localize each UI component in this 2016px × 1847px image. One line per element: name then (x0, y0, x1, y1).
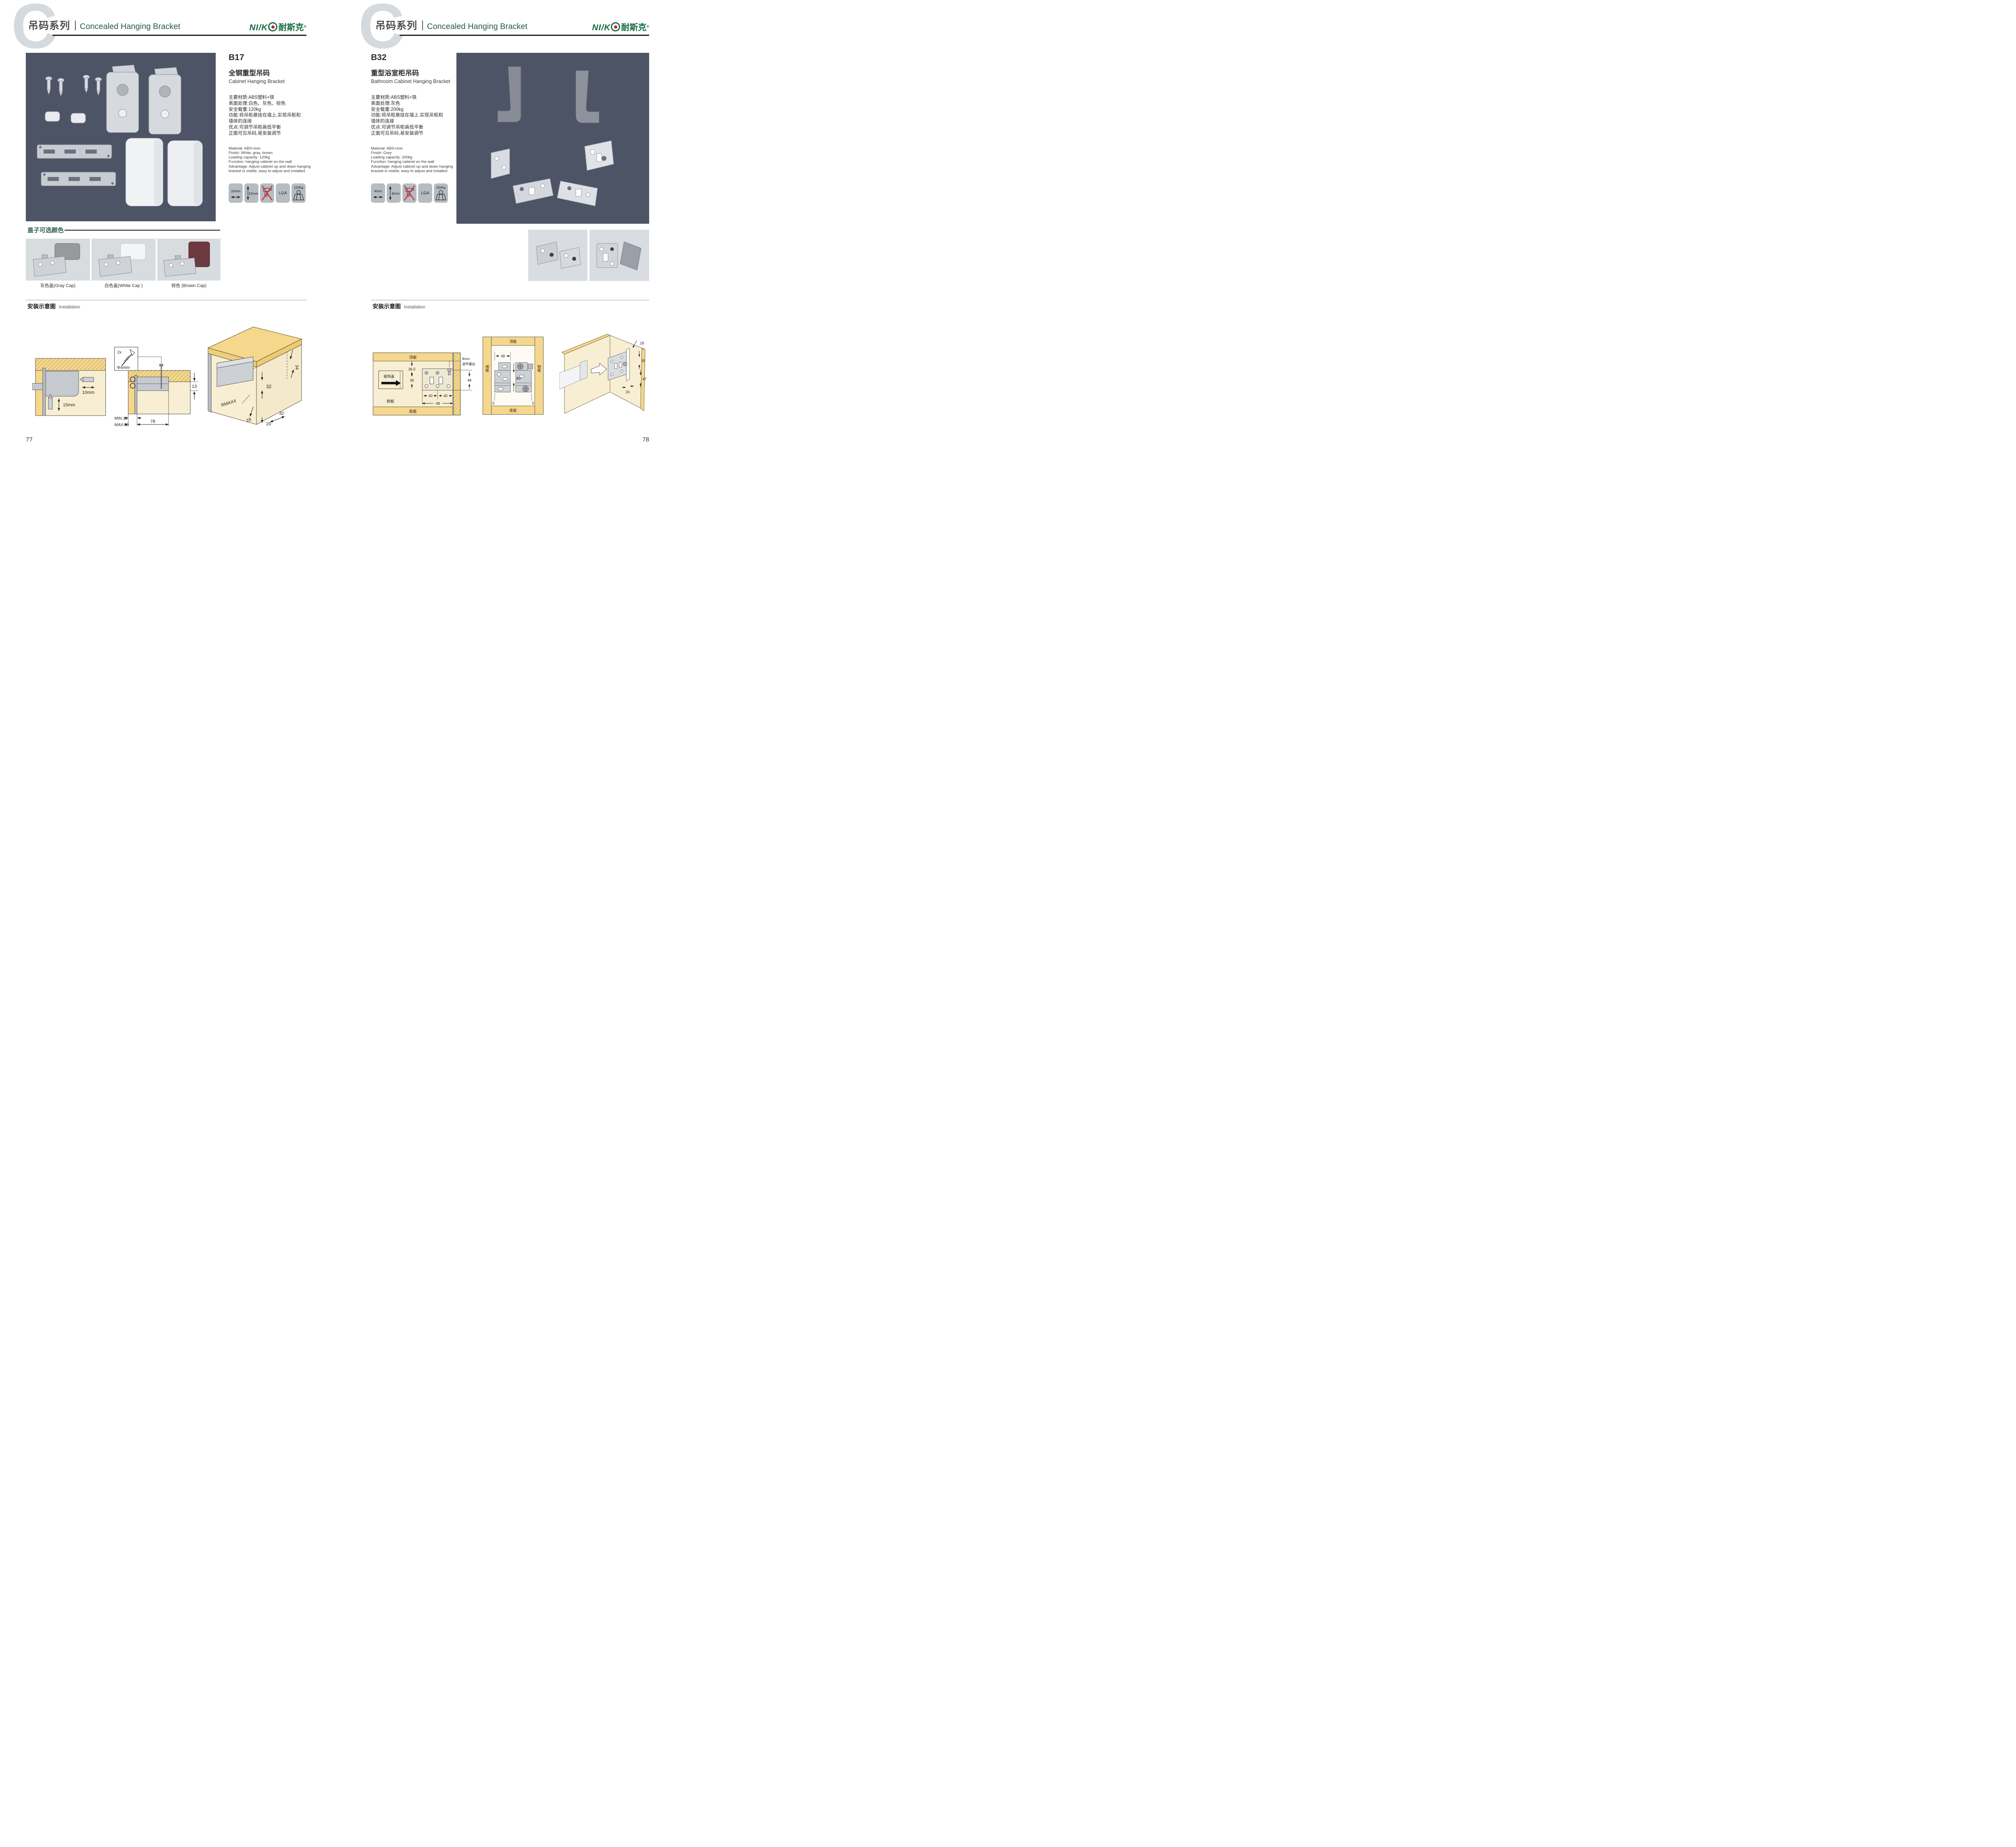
product-photo-b17 (26, 53, 216, 221)
dim-20: 20 (266, 422, 271, 426)
label-cover: 装饰盖 (383, 374, 394, 379)
bracket-plate (33, 256, 66, 277)
installation-title-en: Installation (59, 305, 80, 310)
label-side-panel: 侧板 (387, 399, 394, 404)
spec-line: Loading capacity: 200kg (371, 155, 456, 160)
registered-mark: ® (646, 25, 649, 29)
plate-cover-illustration (589, 230, 649, 281)
wall-plug-cap (71, 113, 85, 123)
specs-en: Material: ABS+iron Finish: White, gray, … (229, 146, 314, 174)
screw-note-1: 8mm (462, 357, 470, 361)
spec-line: 表面处理:白色、灰色、棕色 (229, 101, 314, 107)
header-rule (52, 35, 306, 36)
wall-hook (32, 383, 43, 390)
dim-5-right: 5 (532, 401, 534, 406)
white-cap-illustration (92, 239, 156, 281)
spec-line: 优点:可调节吊柜高低平衡 (229, 125, 314, 131)
specs-en: Material: ABS+iron Finish: Grey Loading … (371, 146, 456, 174)
dim-13: 13 (192, 384, 197, 389)
gray-cover (620, 242, 641, 270)
cap-option-white (92, 239, 156, 281)
installation-diagram-section: 10mm 15mm (32, 354, 109, 419)
spec-line: Advantage: Adjust cabinet up and down ha… (371, 164, 456, 169)
vertical-arrow-icon (244, 183, 258, 203)
series-title-en: Concealed Hanging Bracket (427, 22, 527, 31)
hanging-bracket-metal (106, 65, 139, 133)
driver-bit-icon (80, 377, 94, 382)
spec-badges-b17: 10mm 15mm LGA 120Kg (229, 183, 306, 203)
spec-line: 优点:可调节吊柜高低平衡 (371, 125, 456, 131)
label-top-panel: 顶板 (409, 355, 417, 360)
product-name-en: Cabinet Hanging Bracket (229, 79, 314, 84)
dim-24: 24 (626, 390, 630, 394)
spec-line: Loading capacity: 120kg (229, 155, 314, 160)
nisko-target-icon (268, 22, 277, 31)
installation-title-zh: 安装示意图 (373, 303, 401, 310)
b17-photo-illustration (26, 53, 216, 221)
spec-badges-b32: 4mm 8mm LGA 200Kg (371, 183, 448, 203)
dim-40b: 40 (444, 394, 448, 398)
height-dimension-badge: 8mm (387, 183, 401, 203)
corner-bracket-chrome (585, 141, 614, 171)
dim-18: 18 (640, 341, 644, 345)
no-drill-icon (260, 183, 274, 203)
dim-80: 80 (516, 376, 521, 381)
detail-photo-plates (528, 230, 587, 281)
no-drill-badge (402, 183, 417, 203)
spec-line: 墙体的连接 (371, 119, 456, 125)
screw-icon (58, 78, 64, 96)
spec-line: 功能:将吊柜悬挂在墙上,实现吊柜和 (229, 112, 314, 119)
series-title-zh: 吊码系列 (375, 20, 417, 31)
section-divider (371, 300, 649, 300)
installation-title-zh: 安装示意图 (27, 303, 56, 310)
mounting-rail (41, 172, 116, 186)
screw-icon (95, 77, 102, 96)
product-code: B17 (229, 53, 314, 62)
header-rule (400, 35, 649, 36)
header-divider-bar (422, 21, 423, 30)
nisko-logo: NI/K耐斯克® (249, 21, 306, 33)
label-side-right: 侧板 (537, 364, 541, 372)
spec-line: 墙体的连接 (229, 119, 314, 125)
product-name-zh: 全钢重型吊码 (229, 67, 314, 77)
dim-35: 35 (641, 359, 645, 363)
screw-icon (83, 75, 90, 93)
dim-48: 48 (501, 354, 505, 358)
spec-line: 表面处理:灰色 (371, 101, 456, 107)
hook-cover-dark (576, 71, 599, 123)
bracket-plate (164, 258, 196, 277)
weight-icon (434, 183, 448, 203)
dim-36: 36 (410, 378, 414, 382)
installation-diagram-corner-3d: 18 35 47 24 (559, 331, 650, 417)
wall-plug-cap (45, 112, 60, 121)
horizontal-arrow-icon (371, 183, 385, 203)
dim-5-left: 5 (492, 401, 494, 406)
cap-option-brown (157, 239, 221, 281)
product-photo-b32 (456, 53, 649, 224)
gray-cap-illustration (26, 239, 90, 281)
spec-line: Material: ABS+iron (371, 146, 456, 151)
spec-line: Function: hanging cabinet on the wall (229, 160, 314, 164)
installation-diagram-dimensions: 2x Φ4mm 13 MIN.10 MAX.30 78 (114, 341, 200, 428)
installation-diagram-frame: 顶板 底板 侧板 侧板 (480, 334, 546, 417)
spec-line: bracket is visible, easy to adjust and i… (229, 169, 314, 173)
decorative-cover-box: 装饰盖 (379, 371, 403, 389)
page-77: C 吊码系列Concealed Hanging Bracket NI/K耐斯克® (0, 0, 338, 462)
spec-line: bracket is visible, easy to adjust and i… (371, 169, 456, 173)
nisko-logo: NI/K耐斯克® (592, 21, 649, 33)
label-top-panel: 顶板 (510, 339, 517, 344)
corner-bracket-chrome (491, 149, 510, 179)
lga-label: LGA (276, 191, 290, 196)
spec-line: 安全载重:120kg (229, 107, 314, 113)
lga-label: LGA (418, 191, 432, 196)
vertical-arrow-icon (387, 183, 401, 203)
spec-line: 正面可见吊码,易安装调节 (229, 131, 314, 137)
spec-line: Finish: Grey (371, 151, 456, 155)
plates-illustration (528, 230, 587, 281)
height-dimension-badge: 15mm (244, 183, 258, 203)
cap-caption-white: 白色盖(White Cap ) (92, 282, 156, 289)
adjusting-bolt (528, 364, 533, 369)
installation-title: 安装示意图Installation (373, 302, 425, 310)
wall-plate-chrome (513, 179, 553, 204)
dim-36-5: 36.5 (408, 367, 416, 371)
adjusting-screw (623, 362, 627, 366)
spec-line: Advantage: Adjust cabinet up and down ha… (229, 164, 314, 169)
installation-diagram-3d: 34 32 RMAX4 18 20 32 (202, 321, 306, 427)
width-dimension-badge: 4mm (371, 183, 385, 203)
dim-10mm: 10mm (82, 390, 95, 395)
caps-section-rule (65, 230, 220, 231)
installation-title: 安装示意图Installation (27, 302, 80, 310)
dim-32-v: 32 (266, 384, 272, 389)
screw-icon (46, 77, 52, 95)
hook-cover-dark (498, 67, 521, 122)
spec-line: Function: hanging cabinet on the wall (371, 160, 456, 164)
dim-48: 48 (467, 378, 471, 382)
driver-bit-icon (48, 394, 52, 409)
product-info-b32: B32 重型浴室柜吊码 Bathroom Cabinet Hanging Bra… (371, 53, 456, 173)
no-drill-badge (260, 183, 274, 203)
installation-title-en: Installation (404, 305, 425, 310)
hanging-bracket-metal (149, 67, 181, 134)
page-number: 77 (26, 436, 33, 443)
cap-caption-gray: 灰色盖(Gray Cap) (26, 282, 90, 289)
label-bottom-panel: 底板 (409, 409, 417, 414)
detail-photo-plate-cover (589, 230, 649, 281)
screw-diameter: Φ4mm (117, 365, 130, 370)
bracket-plate-front (422, 368, 453, 390)
page-header: 吊码系列Concealed Hanging Bracket (375, 18, 527, 32)
dim-32-b: 32 (279, 411, 284, 416)
dim-34: 34 (294, 365, 299, 370)
dim-min10: MIN.10 (115, 416, 128, 421)
b32-photo-illustration (456, 53, 649, 224)
series-title-en: Concealed Hanging Bracket (80, 22, 180, 31)
white-plastic-cover (168, 141, 202, 206)
spec-line: Finish: White, gray, brown (229, 151, 314, 155)
wall-plate-chrome (557, 181, 598, 206)
mounting-rail (37, 145, 112, 158)
no-drill-icon (402, 183, 417, 203)
product-code: B32 (371, 53, 456, 62)
header-divider-bar (75, 21, 76, 30)
label-side-left: 侧板 (485, 364, 489, 372)
bracket-plate (99, 256, 132, 277)
load-capacity-badge: 120Kg (292, 183, 306, 203)
dim-98: 98 (436, 401, 440, 406)
dim-40a: 40 (429, 394, 433, 398)
dim-15mm: 15mm (63, 403, 75, 408)
page-header: 吊码系列Concealed Hanging Bracket (28, 18, 180, 32)
series-title-zh: 吊码系列 (28, 20, 70, 31)
cap-caption-brown: 棕色 (Brown Cap) (157, 282, 221, 289)
screw-qty: 2x (117, 350, 122, 355)
catalog-spread: C 吊码系列Concealed Hanging Bracket NI/K耐斯克® (0, 0, 676, 462)
logo-latin: NI/K (592, 23, 610, 32)
logo-latin: NI/K (249, 23, 268, 32)
dim-47: 47 (643, 377, 647, 381)
spec-line: 主要材质:ABS塑料+铁 (229, 95, 314, 101)
spec-line: 功能:将吊柜悬挂在墙上,实现吊柜和 (371, 112, 456, 119)
product-info-b17: B17 全钢重型吊码 Cabinet Hanging Bracket 主要材质:… (229, 53, 314, 173)
lga-cert-badge: LGA (276, 183, 290, 203)
logo-zh: 耐斯克 (278, 23, 304, 32)
load-capacity-badge: 200Kg (434, 183, 448, 203)
weight-icon (292, 183, 306, 203)
spec-line: 主要材质:ABS塑料+铁 (371, 95, 456, 101)
label-bottom-panel: 底板 (510, 408, 517, 413)
dim-max30: MAX.30 (115, 423, 129, 427)
specs-zh: 主要材质:ABS塑料+铁 表面处理:灰色 安全载重:200kg 功能:将吊柜悬挂… (371, 95, 456, 137)
dim-78: 78 (150, 419, 155, 424)
page-78: C 吊码系列Concealed Hanging Bracket NI/K耐斯克®… (338, 0, 676, 462)
cap-option-gray (26, 239, 90, 281)
spec-line: 正面可见吊码,易安装调节 (371, 131, 456, 137)
registered-mark: ® (304, 25, 306, 29)
caps-section-title: 盖子可选颜色 (27, 226, 64, 234)
product-name-zh: 重型浴室柜吊码 (371, 67, 456, 77)
screw-note-2: 调节螺丝 (462, 362, 475, 366)
white-plastic-cover (126, 138, 163, 206)
spec-line: Material: ABS+iron (229, 146, 314, 151)
width-dimension-badge: 10mm (229, 183, 243, 203)
section-divider (26, 300, 306, 300)
specs-zh: 主要材质:ABS塑料+铁 表面处理:白色、灰色、棕色 安全载重:120kg 功能… (229, 95, 314, 137)
installation-diagram-front: 顶板 底板 侧板 装饰盖 36.5 36 (371, 351, 475, 417)
page-number: 78 (642, 436, 649, 443)
spec-line: 安全载重:200kg (371, 107, 456, 113)
logo-zh: 耐斯克 (621, 23, 646, 32)
brown-cap-illustration (157, 239, 221, 281)
product-name-en: Bathroom Cabinet Hanging Bracket (371, 79, 456, 84)
lga-cert-badge: LGA (418, 183, 432, 203)
horizontal-arrow-icon (229, 183, 243, 203)
nisko-target-icon (611, 22, 620, 31)
